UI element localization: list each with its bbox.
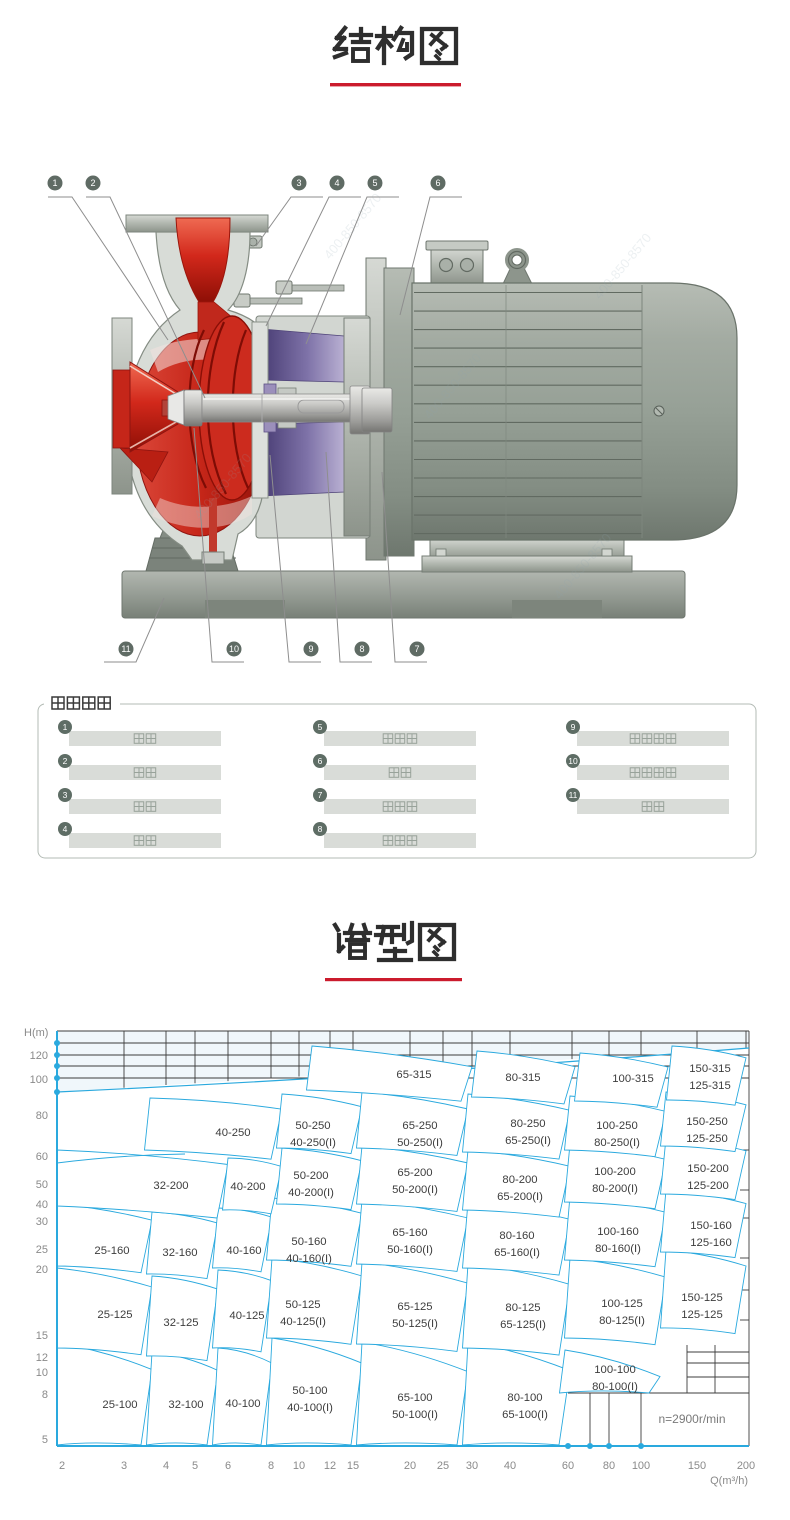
svg-text:8: 8 bbox=[359, 644, 364, 654]
svg-text:80-125(I): 80-125(I) bbox=[599, 1315, 645, 1327]
svg-text:80-200: 80-200 bbox=[502, 1174, 537, 1186]
svg-text:6: 6 bbox=[318, 756, 323, 766]
svg-text:40-200: 40-200 bbox=[230, 1181, 265, 1193]
svg-text:32-200: 32-200 bbox=[153, 1180, 188, 1192]
svg-text:100-250: 100-250 bbox=[596, 1120, 637, 1132]
svg-text:125-250: 125-250 bbox=[686, 1133, 727, 1145]
svg-text:100: 100 bbox=[30, 1074, 48, 1086]
svg-text:65-100: 65-100 bbox=[397, 1392, 432, 1404]
svg-text:10: 10 bbox=[293, 1460, 305, 1472]
svg-text:3: 3 bbox=[296, 178, 301, 188]
svg-text:40-100: 40-100 bbox=[225, 1398, 260, 1410]
svg-text:65-160(I): 65-160(I) bbox=[494, 1247, 540, 1259]
svg-text:40-250: 40-250 bbox=[215, 1127, 250, 1139]
svg-text:125-160: 125-160 bbox=[690, 1237, 731, 1249]
svg-text:65-125(I): 65-125(I) bbox=[500, 1319, 546, 1331]
svg-text:4: 4 bbox=[334, 178, 339, 188]
svg-text:120: 120 bbox=[30, 1050, 48, 1062]
svg-text:50-250: 50-250 bbox=[295, 1120, 330, 1132]
svg-text:65-250(I): 65-250(I) bbox=[505, 1135, 551, 1147]
svg-text:5: 5 bbox=[42, 1434, 48, 1446]
svg-text:25: 25 bbox=[437, 1460, 449, 1472]
svg-text:50-100(I): 50-100(I) bbox=[392, 1409, 438, 1421]
svg-text:50-100: 50-100 bbox=[292, 1385, 327, 1397]
svg-text:65-100(I): 65-100(I) bbox=[502, 1409, 548, 1421]
svg-text:2: 2 bbox=[90, 178, 95, 188]
svg-text:40: 40 bbox=[504, 1460, 516, 1472]
svg-text:25-125: 25-125 bbox=[97, 1309, 132, 1321]
svg-text:150-125: 150-125 bbox=[681, 1292, 722, 1304]
svg-text:150-160: 150-160 bbox=[690, 1220, 731, 1232]
svg-text:100-200: 100-200 bbox=[594, 1166, 635, 1178]
svg-text:8: 8 bbox=[318, 824, 323, 834]
svg-text:100: 100 bbox=[632, 1460, 650, 1472]
svg-text:40-125: 40-125 bbox=[229, 1310, 264, 1322]
svg-text:65-200(I): 65-200(I) bbox=[497, 1191, 543, 1203]
svg-text:400-850-8570: 400-850-8570 bbox=[321, 190, 385, 262]
svg-text:80-250(I): 80-250(I) bbox=[594, 1137, 640, 1149]
svg-text:8: 8 bbox=[42, 1389, 48, 1401]
svg-text:25: 25 bbox=[36, 1244, 48, 1256]
svg-text:150-200: 150-200 bbox=[687, 1163, 728, 1175]
svg-text:6: 6 bbox=[225, 1460, 231, 1472]
svg-text:80-315: 80-315 bbox=[505, 1072, 540, 1084]
svg-text:150-250: 150-250 bbox=[686, 1116, 727, 1128]
svg-text:150-315: 150-315 bbox=[689, 1063, 730, 1075]
svg-text:10: 10 bbox=[568, 756, 578, 766]
svg-text:3: 3 bbox=[121, 1460, 127, 1472]
svg-text:10: 10 bbox=[229, 644, 239, 654]
svg-text:H(m): H(m) bbox=[24, 1027, 48, 1039]
svg-text:80-160(I): 80-160(I) bbox=[595, 1243, 641, 1255]
svg-text:2: 2 bbox=[63, 756, 68, 766]
svg-text:40-125(I): 40-125(I) bbox=[280, 1316, 326, 1328]
svg-text:150: 150 bbox=[688, 1460, 706, 1472]
svg-text:65-125: 65-125 bbox=[397, 1301, 432, 1313]
svg-text:40-160: 40-160 bbox=[226, 1245, 261, 1257]
svg-text:1: 1 bbox=[52, 178, 57, 188]
svg-text:32-125: 32-125 bbox=[163, 1317, 198, 1329]
svg-text:60: 60 bbox=[36, 1151, 48, 1163]
svg-text:20: 20 bbox=[36, 1264, 48, 1276]
svg-text:40: 40 bbox=[36, 1199, 48, 1211]
svg-text:5: 5 bbox=[192, 1460, 198, 1472]
svg-text:4: 4 bbox=[163, 1460, 169, 1472]
svg-text:n=2900r/min: n=2900r/min bbox=[658, 1412, 725, 1426]
svg-text:5: 5 bbox=[372, 178, 377, 188]
svg-text:40-200(I): 40-200(I) bbox=[288, 1187, 334, 1199]
svg-text:125-125: 125-125 bbox=[681, 1309, 722, 1321]
svg-text:100-125: 100-125 bbox=[601, 1298, 642, 1310]
svg-text:20: 20 bbox=[404, 1460, 416, 1472]
svg-text:2: 2 bbox=[59, 1460, 65, 1472]
svg-text:60: 60 bbox=[562, 1460, 574, 1472]
svg-text:50-200: 50-200 bbox=[293, 1170, 328, 1182]
svg-text:50-160: 50-160 bbox=[291, 1236, 326, 1248]
svg-text:7: 7 bbox=[414, 644, 419, 654]
svg-text:25-100: 25-100 bbox=[102, 1399, 137, 1411]
svg-text:1: 1 bbox=[63, 722, 68, 732]
svg-text:9: 9 bbox=[308, 644, 313, 654]
svg-text:30: 30 bbox=[466, 1460, 478, 1472]
svg-text:3: 3 bbox=[63, 790, 68, 800]
svg-text:40-250(I): 40-250(I) bbox=[290, 1137, 336, 1149]
svg-text:50-125: 50-125 bbox=[285, 1299, 320, 1311]
svg-text:100-100: 100-100 bbox=[594, 1364, 635, 1376]
svg-text:12: 12 bbox=[36, 1352, 48, 1364]
svg-text:11: 11 bbox=[569, 790, 578, 800]
svg-text:65-200: 65-200 bbox=[397, 1167, 432, 1179]
svg-text:100-160: 100-160 bbox=[597, 1226, 638, 1238]
svg-text:15: 15 bbox=[36, 1330, 48, 1342]
svg-text:80-100(I): 80-100(I) bbox=[592, 1381, 638, 1393]
svg-text:80-125: 80-125 bbox=[505, 1302, 540, 1314]
svg-text:Q(m³/h): Q(m³/h) bbox=[710, 1475, 748, 1487]
svg-text:32-100: 32-100 bbox=[168, 1399, 203, 1411]
svg-text:80-160: 80-160 bbox=[499, 1230, 534, 1242]
svg-text:7: 7 bbox=[318, 790, 323, 800]
svg-text:11: 11 bbox=[121, 644, 130, 654]
svg-text:12: 12 bbox=[324, 1460, 336, 1472]
svg-text:8: 8 bbox=[268, 1460, 274, 1472]
svg-text:40-100(I): 40-100(I) bbox=[287, 1402, 333, 1414]
svg-text:30: 30 bbox=[36, 1216, 48, 1228]
svg-text:80: 80 bbox=[36, 1110, 48, 1122]
svg-text:25-160: 25-160 bbox=[94, 1245, 129, 1257]
svg-text:200: 200 bbox=[737, 1460, 755, 1472]
svg-text:65-160: 65-160 bbox=[392, 1227, 427, 1239]
svg-text:80: 80 bbox=[603, 1460, 615, 1472]
svg-text:10: 10 bbox=[36, 1367, 48, 1379]
svg-text:80-200(I): 80-200(I) bbox=[592, 1183, 638, 1195]
svg-text:15: 15 bbox=[347, 1460, 359, 1472]
svg-text:40-160(I): 40-160(I) bbox=[286, 1253, 332, 1265]
svg-text:65-250: 65-250 bbox=[402, 1120, 437, 1132]
svg-text:9: 9 bbox=[571, 722, 576, 732]
svg-text:50-250(I): 50-250(I) bbox=[397, 1137, 443, 1149]
svg-text:80-250: 80-250 bbox=[510, 1118, 545, 1130]
svg-text:6: 6 bbox=[435, 178, 440, 188]
svg-text:5: 5 bbox=[318, 722, 323, 732]
svg-text:50-200(I): 50-200(I) bbox=[392, 1184, 438, 1196]
svg-text:50-125(I): 50-125(I) bbox=[392, 1318, 438, 1330]
svg-text:100-315: 100-315 bbox=[612, 1073, 653, 1085]
svg-text:50-160(I): 50-160(I) bbox=[387, 1244, 433, 1256]
svg-text:50: 50 bbox=[36, 1179, 48, 1191]
svg-text:32-160: 32-160 bbox=[162, 1247, 197, 1259]
svg-text:4: 4 bbox=[63, 824, 68, 834]
svg-text:125-200: 125-200 bbox=[687, 1180, 728, 1192]
svg-text:125-315: 125-315 bbox=[689, 1080, 730, 1092]
svg-text:65-315: 65-315 bbox=[396, 1069, 431, 1081]
svg-text:80-100: 80-100 bbox=[507, 1392, 542, 1404]
